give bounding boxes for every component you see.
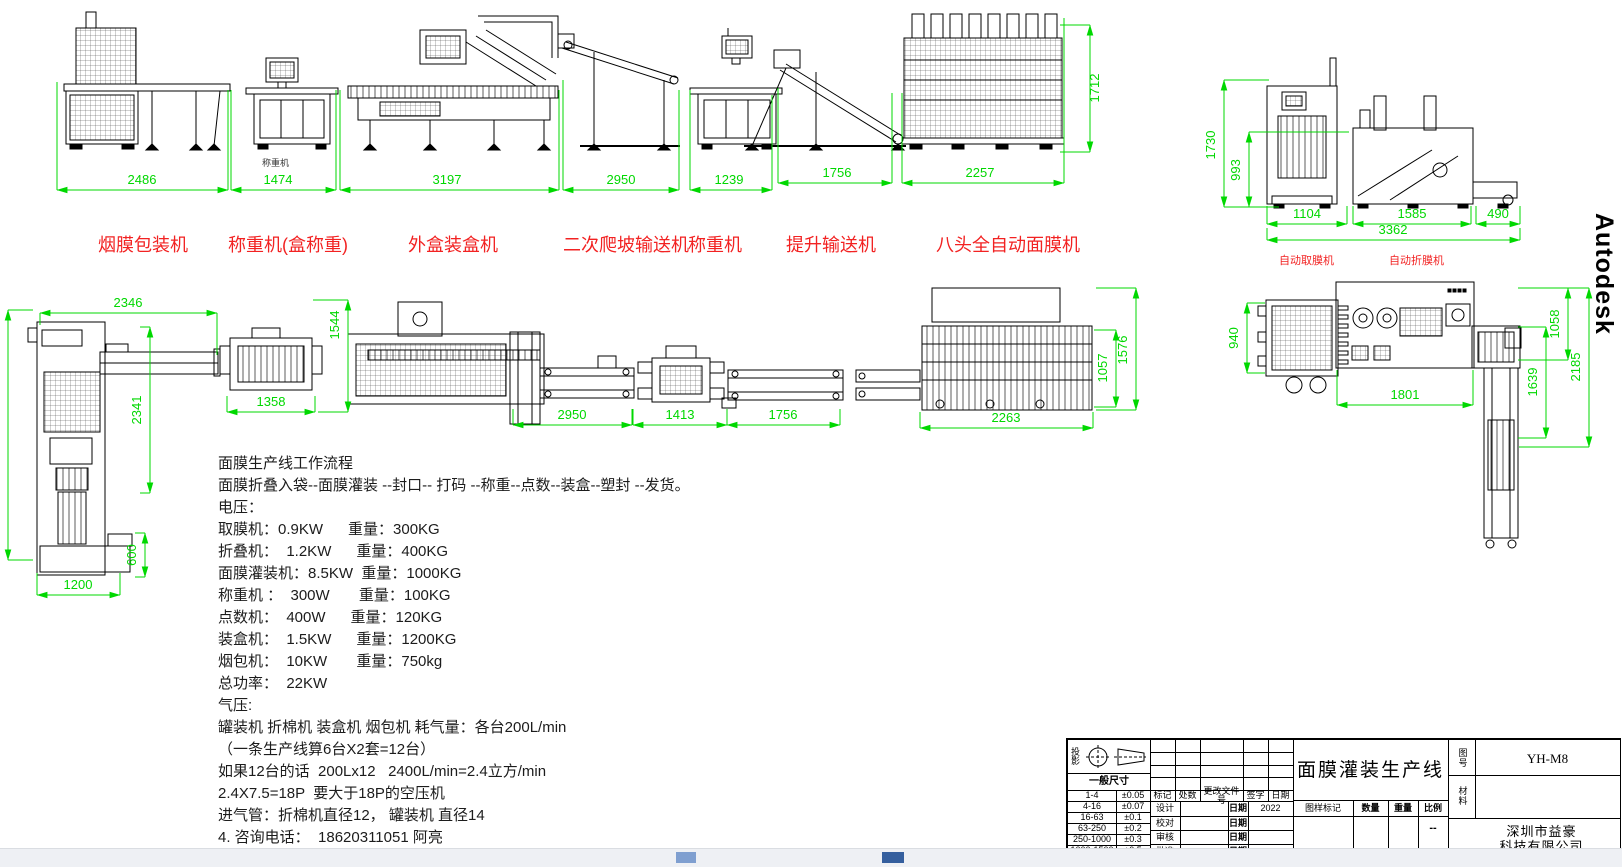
bottom-strip [0, 848, 1622, 867]
attr-header: 重量 [1388, 802, 1418, 815]
tol-range: 1-4 [1068, 790, 1116, 801]
tol-range: 250-1000 [1068, 834, 1116, 845]
note-line: 面膜灌装机：8.5KW 重量：1000KG [218, 562, 461, 583]
drawing-title: 面膜灌装生产线 [1293, 750, 1448, 790]
dimension-label: 490 [1487, 206, 1509, 221]
tol-value: ±0.2 [1116, 823, 1150, 834]
note-line: 点数机： 400W 重量：120KG [218, 606, 442, 627]
dimension-label: 2257 [966, 165, 995, 180]
machine-label: 烟膜包装机 [98, 231, 188, 257]
note-line: 烟包机： 10KW 重量：750kg [218, 650, 442, 671]
title-block: 投影 一般尺寸 1-4 ±0.05 4-16 ±0.07 16-63 ±0.1 … [1066, 738, 1621, 852]
tol-range: 16-63 [1068, 812, 1116, 823]
machine-label: 八头全自动面膜机 [936, 231, 1080, 257]
rev-header: 更改文件号 [1200, 790, 1243, 801]
design-year: 2022 [1248, 801, 1293, 816]
dimension-label: 1474 [264, 172, 293, 187]
dimension-label: 1544 [327, 311, 342, 340]
sign-role: 审核 [1150, 830, 1180, 844]
dimension-label: 1730 [1203, 131, 1218, 160]
machine-label: 称重机 [262, 156, 289, 169]
tol-value: ±0.3 [1116, 834, 1150, 845]
dimension-label: 2185 [1568, 353, 1583, 382]
dimension-label: 1200 [64, 577, 93, 592]
sign-role: 设计 [1150, 801, 1180, 816]
machine-label: 自动取膜机 [1279, 252, 1334, 268]
dimension-label: 2341 [129, 396, 144, 425]
dimension-label: 2950 [607, 172, 636, 187]
machine-label: 自动折膜机 [1389, 252, 1444, 268]
dimension-label: 600 [124, 544, 139, 566]
note-line: 称重机 ： 300W 重量：100KG [218, 584, 451, 605]
note-line: 装盒机： 1.5KW 重量：1200KG [218, 628, 456, 649]
company-name-line1: 深圳市益豪 [1463, 824, 1620, 838]
dimension-label: 2263 [992, 410, 1021, 425]
general-dim-header: 一般尺寸 [1068, 774, 1150, 789]
projection-symbol-icon [1084, 744, 1148, 770]
dimension-label: 1801 [1391, 387, 1420, 402]
dimension-label: 1358 [257, 394, 286, 409]
tol-value: ±0.05 [1116, 790, 1150, 801]
cad-drawing-canvas: 2486147431972950123917562257171217309931… [0, 0, 1622, 867]
machine-label: 提升输送机 [786, 231, 876, 257]
dimension-label: 940 [1226, 327, 1241, 349]
note-line: 取膜机：0.9KW 重量：300KG [218, 518, 440, 539]
tol-range: 4-16 [1068, 801, 1116, 812]
tol-value: ±0.07 [1116, 801, 1150, 812]
tol-value: ±0.1 [1116, 812, 1150, 823]
dimension-label: 1756 [823, 165, 852, 180]
rev-header: 标记 [1150, 790, 1175, 801]
date-label: 日期 [1228, 830, 1248, 844]
note-line: 气压: [218, 694, 252, 715]
dimension-label: 3362 [1379, 222, 1408, 237]
dimension-label: 993 [1228, 159, 1243, 181]
taskbar-chip[interactable] [676, 852, 696, 863]
dimension-label: 1239 [715, 172, 744, 187]
dimension-label: 1576 [1115, 336, 1130, 365]
note-line: 2.4X7.5=18P 要大于18P的空压机 [218, 782, 445, 803]
attr-header: 图样标记 [1293, 802, 1353, 815]
dimension-label: 1639 [1525, 368, 1540, 397]
autodesk-watermark: Autodesk [1589, 213, 1618, 335]
dimension-label: 2950 [558, 407, 587, 422]
note-line: 总功率： 22KW [218, 672, 327, 693]
dimension-label: 1712 [1087, 74, 1102, 103]
sign-role: 校对 [1150, 816, 1180, 830]
note-line: 电压： [218, 496, 263, 517]
scale-value: -- [1418, 820, 1448, 836]
dimension-label: 3197 [433, 172, 462, 187]
rev-header: 日期 [1268, 790, 1293, 801]
taskbar-chip[interactable] [882, 852, 904, 863]
machine-label: 二次爬坡输送机 [563, 231, 689, 257]
dimension-label: 1756 [769, 407, 798, 422]
tol-range: 63-250 [1068, 823, 1116, 834]
note-line: 面膜折叠入袋--面膜灌装 --封口-- 打码 --称重--点数--装盒--塑封 … [218, 474, 690, 495]
material-label: 材料 [1455, 782, 1469, 810]
machine-label: 称重机(盒称重) [228, 231, 348, 257]
dimension-label: 1057 [1095, 354, 1110, 383]
rev-header: 处数 [1175, 790, 1200, 801]
note-line: 罐装机 折棉机 装盒机 烟包机 耗气量：各台200L/min [218, 716, 566, 737]
note-line: 折叠机： 1.2KW 重量：400KG [218, 540, 448, 561]
projection-label: 投影 [1069, 743, 1082, 771]
note-line: 进气管：折棉机直径12， 罐装机 直径14 [218, 804, 485, 825]
machine-label: 称重机 [688, 231, 742, 257]
note-line: 4. 咨询电话： 18620311051 阿亮 [218, 826, 443, 847]
fig-no-value: YH-M8 [1475, 748, 1620, 768]
attr-header: 数量 [1353, 802, 1388, 815]
note-line: 如果12台的话 200Lx12 2400L/min=2.4立方/min [218, 760, 546, 781]
dimension-label: 1585 [1398, 206, 1427, 221]
dimension-label: 1104 [1293, 206, 1321, 221]
fig-no-label: 图号 [1455, 744, 1469, 772]
date-label: 日期 [1228, 801, 1248, 816]
dimension-label: 2346 [114, 295, 143, 310]
note-line: 面膜生产线工作流程 [218, 452, 353, 473]
dimension-label: 2486 [128, 172, 157, 187]
note-line: （一条生产线算6台X2套=12台） [218, 738, 435, 759]
machine-label: 外盒装盒机 [408, 231, 498, 257]
dimension-label: 1413 [666, 407, 695, 422]
rev-header: 签字 [1243, 790, 1268, 801]
date-label: 日期 [1228, 816, 1248, 830]
dimension-label: 1058 [1547, 310, 1562, 339]
attr-header: 比例 [1418, 802, 1448, 815]
